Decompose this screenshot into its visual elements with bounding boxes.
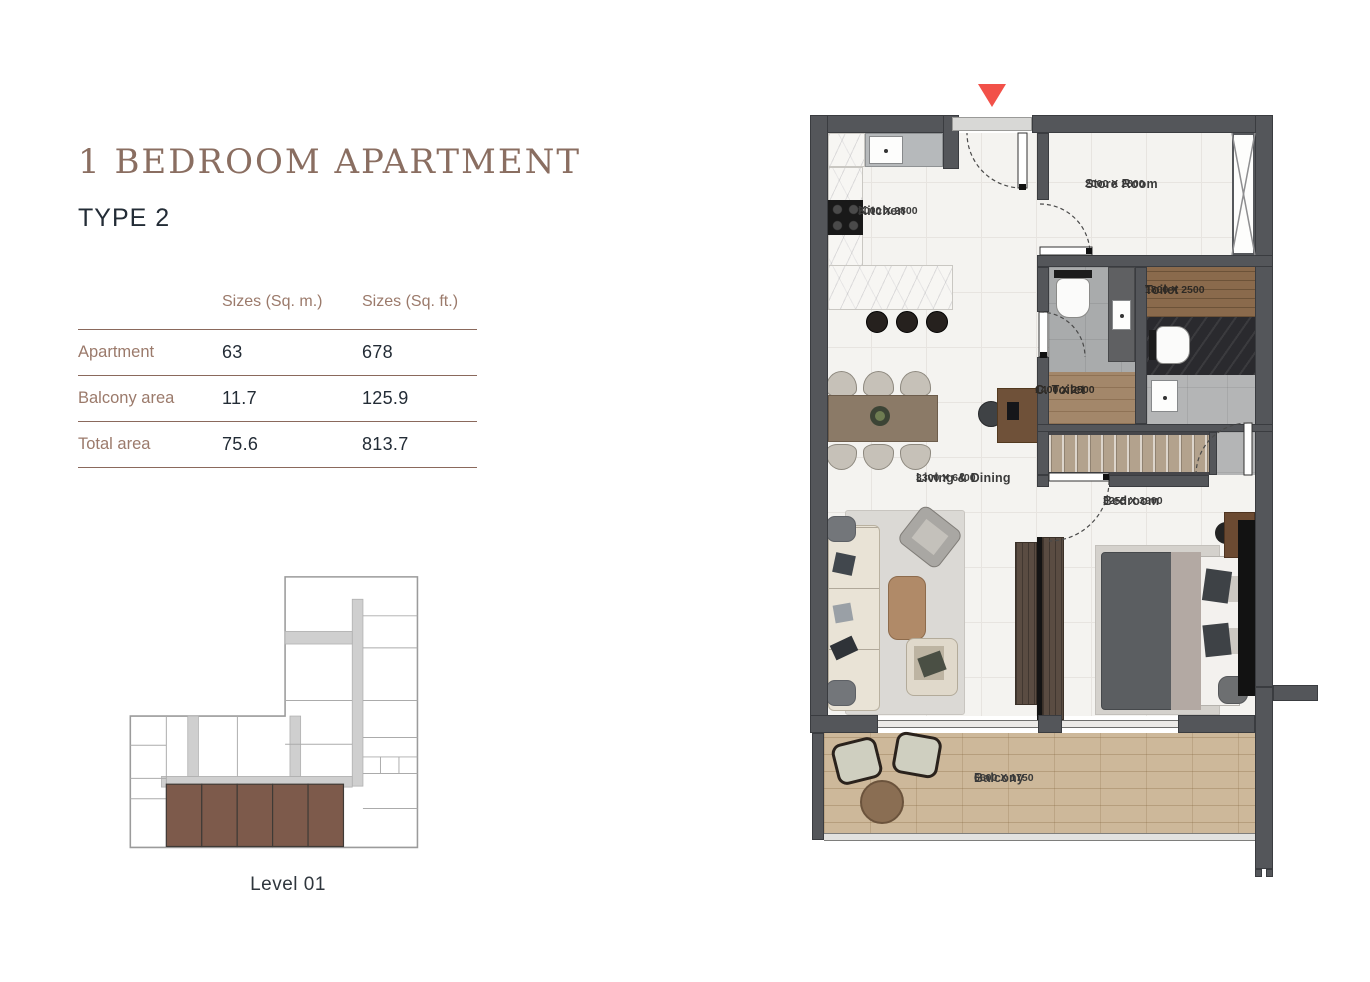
wall — [810, 115, 828, 733]
level-caption: Level 01 — [118, 874, 458, 896]
ottoman — [826, 516, 856, 542]
row-label: Balcony area — [78, 389, 222, 408]
row-sqft: 813.7 — [362, 434, 477, 455]
table-row: Apartment 63 678 — [78, 330, 477, 376]
dining-chair — [900, 371, 931, 397]
basin — [1112, 300, 1131, 330]
row-sqft: 678 — [362, 342, 477, 363]
service-shaft — [1232, 133, 1255, 255]
coffee-table — [888, 576, 926, 640]
row-label: Total area — [78, 435, 222, 454]
wall — [810, 115, 952, 133]
wall — [1037, 357, 1049, 475]
kitchen-counter — [828, 133, 865, 167]
balcony-chair — [891, 730, 944, 779]
toilet-bowl — [1056, 278, 1090, 318]
laptop — [1007, 402, 1019, 420]
wall — [812, 733, 824, 840]
dining-chair — [826, 371, 857, 397]
wardrobe — [1049, 432, 1209, 475]
wall — [1037, 255, 1273, 267]
wall — [1255, 687, 1273, 869]
kitchen-sink — [869, 136, 903, 164]
sizes-table-header: Sizes (Sq. m.) Sizes (Sq. ft.) — [78, 293, 477, 330]
page-title: 1 BEDROOM APARTMENT — [78, 142, 581, 182]
dining-chair — [863, 371, 894, 397]
wall — [1037, 133, 1049, 200]
floor-plan: Kitchen 2000 X 2800 Store Room 2000 X 28… — [808, 84, 1323, 884]
row-label: Apartment — [78, 343, 222, 362]
level-plan-drawing — [123, 572, 453, 864]
shower-basin — [1151, 380, 1178, 412]
wall — [1255, 115, 1273, 687]
table-row: Total area 75.6 813.7 — [78, 422, 477, 468]
wall — [1109, 475, 1209, 487]
window — [1062, 720, 1178, 728]
balcony-railing — [824, 833, 1255, 841]
row-sqm: 75.6 — [222, 434, 362, 455]
table-row: Balcony area 11.7 125.9 — [78, 376, 477, 422]
pillow — [1202, 623, 1231, 658]
row-sqm: 63 — [222, 342, 362, 363]
row-sqm: 11.7 — [222, 388, 362, 409]
sliding-panel — [1015, 542, 1037, 705]
brochure-page: 1 BEDROOM APARTMENT TYPE 2 Sizes (Sq. m.… — [0, 0, 1370, 982]
bar-stool — [926, 311, 948, 333]
row-sqft: 125.9 — [362, 388, 477, 409]
sliding-panel — [1042, 537, 1064, 720]
col-sqm: Sizes (Sq. m.) — [222, 293, 362, 311]
page-subtitle: TYPE 2 — [78, 204, 170, 233]
ctoilet-wood-floor — [1049, 372, 1135, 424]
window — [878, 720, 1038, 728]
balcony-table — [860, 780, 904, 824]
ottoman — [826, 680, 856, 706]
wall — [1266, 869, 1273, 877]
wall — [1038, 715, 1062, 733]
level-key-plan: Level 01 — [118, 572, 458, 896]
toilet-bowl — [1156, 326, 1190, 364]
wall — [1037, 475, 1049, 487]
bar-stool — [866, 311, 888, 333]
duvet — [1101, 552, 1179, 710]
sofa-pillow — [832, 552, 856, 576]
plant-leaves — [875, 411, 885, 421]
wall — [1209, 432, 1217, 475]
kitchen-island — [828, 265, 953, 310]
wall — [1178, 715, 1255, 733]
highlighted-units — [166, 784, 343, 846]
pillow — [1202, 568, 1232, 603]
sofa-pillow — [833, 603, 854, 624]
col-sqft: Sizes (Sq. ft.) — [362, 293, 477, 311]
wall — [1032, 115, 1273, 133]
entry-threshold — [952, 117, 1032, 131]
wall — [1255, 869, 1262, 877]
headboard-wardrobe — [1238, 520, 1255, 696]
wall — [1037, 267, 1049, 312]
blanket-fold — [1171, 552, 1201, 710]
wall — [1037, 424, 1273, 432]
wall — [1273, 685, 1318, 701]
wall — [810, 715, 878, 733]
bar-stool — [896, 311, 918, 333]
sizes-table: Sizes (Sq. m.) Sizes (Sq. ft.) Apartment… — [78, 293, 477, 468]
entry-marker-icon — [978, 84, 1006, 107]
toilet-tank — [1054, 270, 1092, 278]
